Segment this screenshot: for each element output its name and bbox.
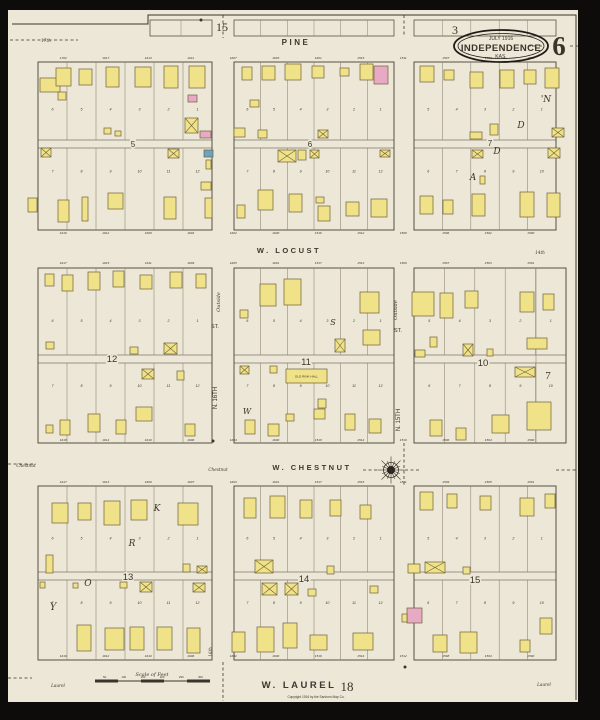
building-frame — [46, 342, 54, 349]
corner-street-note: 16th — [208, 647, 213, 657]
address-number: 1500 — [527, 231, 534, 235]
building-frame — [206, 160, 211, 169]
building-frame — [270, 496, 285, 518]
building-frame — [540, 618, 552, 634]
lot-number: 4 — [300, 319, 302, 323]
building-frame — [258, 130, 267, 138]
lot-number: 5 — [273, 107, 275, 111]
lot-number: 1 — [550, 319, 552, 323]
building-frame — [240, 310, 248, 318]
building-frame — [106, 67, 119, 87]
building-frame — [330, 500, 341, 516]
block-number: 13 — [123, 572, 134, 583]
address-number: 1503 — [485, 261, 492, 265]
building-frame — [88, 414, 100, 432]
lot-number: 3 — [139, 536, 141, 540]
address-number: 1514 — [357, 438, 364, 442]
building-frame — [58, 92, 66, 100]
street-label-chestnut: W. CHESTNUT — [272, 463, 351, 472]
building-stone — [204, 150, 213, 157]
address-number: 1617 — [60, 261, 67, 265]
lot-number: 1 — [197, 107, 199, 111]
address-number: 1506 — [442, 438, 449, 442]
lot-number: 11 — [352, 170, 356, 174]
address-number: 1615 — [102, 261, 109, 265]
building-frame — [52, 503, 68, 523]
building-brick — [374, 66, 388, 84]
lot-number: 3 — [139, 107, 141, 111]
lot-number: 11 — [352, 384, 356, 388]
addition-name-letter: O — [84, 579, 92, 589]
lot-number: 3 — [484, 107, 486, 111]
lot-number: 4 — [110, 536, 112, 540]
street-label-16th-st: ST. — [211, 324, 219, 330]
building-frame — [327, 566, 334, 574]
lot-number: 9 — [300, 384, 302, 388]
lot-number: 9 — [300, 170, 302, 174]
building-frame — [520, 498, 534, 516]
lot-number: 10 — [325, 601, 329, 605]
scale-bar-segment — [141, 680, 164, 683]
lot-number: 4 — [300, 107, 302, 111]
building-frame — [82, 197, 88, 221]
building-frame — [270, 366, 277, 373]
building-frame — [430, 337, 437, 347]
building-frame — [28, 198, 37, 212]
lot-number: 4 — [300, 536, 302, 540]
lot-number: 5 — [427, 536, 429, 540]
lot-number: 2 — [352, 319, 355, 323]
lot-number: 6 — [246, 319, 248, 323]
building-frame — [164, 66, 178, 88]
address-number: 1616 — [60, 231, 67, 235]
lot-number: 1 — [541, 536, 543, 540]
building-frame — [135, 67, 151, 87]
address-number: 1508 — [442, 654, 449, 658]
building-frame — [371, 199, 387, 217]
addition-name-letter: W — [243, 407, 252, 416]
scale-bar-number: 250 — [179, 675, 184, 679]
lot-number: 5 — [81, 536, 83, 540]
lot-number: 1 — [380, 536, 382, 540]
lot-number: 8 — [81, 170, 83, 174]
address-number: 1517 — [315, 480, 322, 484]
address-number: 1504 — [485, 438, 492, 442]
lot-number: 2 — [511, 107, 514, 111]
building-frame — [415, 350, 425, 357]
address-number: 1609 — [187, 261, 194, 265]
address-number: 1501 — [527, 480, 534, 484]
lot-number: 1 — [197, 536, 199, 540]
building-frame — [237, 205, 245, 218]
lot-number: 6 — [52, 319, 54, 323]
survey-dot — [212, 440, 215, 443]
address-number: 1610 — [145, 654, 152, 658]
address-number: 1613 — [102, 480, 109, 484]
block-number: 7 — [545, 370, 551, 382]
address-number: 1516 — [315, 231, 322, 235]
address-number: 1605 — [230, 261, 237, 265]
lot-number: 8 — [484, 170, 486, 174]
building-frame — [308, 589, 316, 596]
address-number: 1504 — [485, 654, 492, 658]
lot-number: 5 — [428, 319, 430, 323]
address-number: 1611 — [145, 261, 152, 265]
building-frame — [470, 132, 482, 139]
scale-label: Scale of Feet — [136, 672, 170, 678]
lot-number: 10 — [138, 170, 142, 174]
block-number: 14 — [299, 574, 310, 585]
lot-number: 10 — [549, 384, 553, 388]
lot-number: 8 — [273, 384, 275, 388]
address-number: 1510 — [400, 438, 407, 442]
building-frame — [56, 68, 71, 86]
block-number: 10 — [478, 358, 489, 369]
building-frame — [245, 420, 255, 434]
address-number: 1515 — [357, 480, 364, 484]
building-frame — [187, 628, 200, 653]
address-number: 1602 — [230, 231, 237, 235]
street-label-locust: W. LOCUST — [257, 246, 321, 255]
building-frame — [104, 501, 120, 525]
building-frame — [480, 496, 491, 510]
building-frame — [420, 492, 433, 510]
building-frame — [360, 64, 373, 80]
building-frame — [232, 632, 245, 652]
building-frame — [402, 614, 407, 622]
addition-name-letter: D — [492, 147, 500, 157]
lot-number: 3 — [484, 536, 486, 540]
lot-number: 2 — [352, 107, 355, 111]
address-number: 1515 — [357, 56, 364, 60]
building-frame — [470, 72, 483, 88]
building-brick — [188, 95, 197, 102]
building-frame — [131, 500, 147, 520]
building-frame — [520, 192, 534, 217]
lot-number: 6 — [427, 170, 429, 174]
building-frame — [189, 66, 205, 88]
building-frame — [353, 633, 373, 650]
addition-name-letter: R — [128, 539, 136, 549]
building-frame — [284, 279, 301, 305]
building-frame — [472, 194, 485, 216]
lot-number: 5 — [273, 536, 275, 540]
block-number: 7 — [488, 139, 493, 148]
address-number: 1513 — [357, 261, 364, 265]
lot-number: 10 — [325, 170, 329, 174]
address-number: 1612 — [102, 231, 109, 235]
building-frame — [524, 70, 536, 84]
lot-number: 6 — [52, 536, 54, 540]
building-frame — [286, 414, 294, 421]
building-frame — [300, 500, 312, 518]
building-frame — [183, 564, 190, 572]
lot-number: 5 — [81, 319, 83, 323]
scale-bar-segment — [187, 680, 210, 683]
lot-number: 4 — [110, 319, 112, 323]
lot-number: 3 — [326, 319, 328, 323]
corner-street-note: 17th — [41, 38, 51, 43]
building-frame — [283, 623, 297, 648]
block-number: 12 — [107, 354, 118, 365]
address-number: 1612 — [102, 654, 109, 658]
lot-number: 4 — [456, 107, 458, 111]
block-number: 5 — [131, 140, 136, 149]
address-number: 1609 — [145, 480, 152, 484]
building-frame — [314, 409, 325, 419]
address-number: 1502 — [485, 231, 492, 235]
building-frame — [492, 415, 509, 433]
address-number: 1512 — [400, 654, 407, 658]
lot-number: 3 — [326, 536, 328, 540]
building-frame — [465, 291, 478, 308]
building-frame — [46, 555, 53, 573]
lot-number: 2 — [167, 107, 170, 111]
building-frame — [185, 424, 195, 436]
lot-number: 9 — [110, 384, 112, 388]
copyright-line: Copyright 1916 by the Sanborn Map Co. — [287, 695, 344, 699]
lot-number: 1 — [541, 107, 543, 111]
address-number: 1508 — [400, 231, 407, 235]
address-number: 1500 — [527, 654, 534, 658]
building-frame — [440, 293, 453, 318]
lot-number: 1 — [380, 319, 382, 323]
building-frame — [487, 349, 493, 356]
building-frame — [115, 131, 121, 136]
block-number-3-top: 3 — [452, 23, 458, 37]
street-label-n16th: N. 16TH — [213, 387, 219, 409]
compass-north-letter: N — [389, 468, 392, 473]
building-frame — [58, 200, 69, 222]
address-number: 1506 — [442, 231, 449, 235]
lot-number: 2 — [511, 536, 514, 540]
address-number: 1511 — [400, 56, 407, 60]
lot-number: 4 — [456, 536, 458, 540]
building-frame — [430, 420, 442, 436]
building-frame — [88, 272, 100, 290]
scale-bar-number: 50 — [103, 675, 107, 679]
lot-number: 10 — [540, 601, 544, 605]
building-frame — [113, 271, 124, 287]
lot-number: 8 — [484, 601, 486, 605]
address-number: 1610 — [145, 438, 152, 442]
outside-note-15th: Outside — [393, 300, 399, 320]
lot-number: 3 — [139, 319, 141, 323]
lot-number: 6 — [246, 536, 248, 540]
lot-number: 12 — [379, 384, 383, 388]
building-frame — [444, 70, 454, 80]
building-frame — [370, 586, 378, 593]
building-frame — [40, 582, 45, 588]
building-frame — [346, 202, 359, 216]
lot-number: 5 — [273, 319, 275, 323]
building-frame — [260, 284, 276, 306]
lot-number: 4 — [459, 319, 461, 323]
street-label-15th-st: ST. — [394, 328, 402, 334]
building-frame — [369, 419, 381, 433]
building-frame — [201, 182, 211, 190]
building-frame — [456, 428, 466, 440]
lot-number: 10 — [138, 601, 142, 605]
corner-street-note: 14th — [535, 250, 545, 255]
scale-bar-number: 100 — [121, 675, 126, 679]
address-number: 1505 — [485, 480, 492, 484]
map-viewport: 5654321789101112665432178910111275432167… — [0, 0, 600, 720]
lot-number: 2 — [167, 319, 170, 323]
title-city: INDEPENDENCE — [461, 43, 541, 54]
corner-street-note: Chestnut — [208, 467, 228, 472]
street-label-pine: PINE — [282, 38, 311, 47]
addition-name-letter: S — [330, 318, 336, 327]
corner-street-note: Laurel — [50, 683, 65, 688]
title-state: KAS. — [495, 54, 506, 60]
address-number: 1601 — [272, 261, 279, 265]
lot-number: 6 — [428, 384, 430, 388]
building-frame — [105, 628, 124, 650]
building-frame — [140, 275, 152, 289]
address-number: 1600 — [272, 231, 279, 235]
building-frame — [447, 494, 457, 508]
address-number: 1512 — [357, 231, 364, 235]
address-number: 1518 — [315, 438, 322, 442]
building-frame — [545, 494, 555, 508]
building-frame — [298, 150, 306, 160]
building-frame — [360, 292, 379, 313]
building-frame — [130, 627, 144, 650]
building-frame — [60, 420, 70, 435]
lot-number: 12 — [379, 170, 383, 174]
lot-number: 10 — [138, 384, 142, 388]
lot-number: 8 — [81, 601, 83, 605]
addition-name-letter: K — [153, 504, 162, 514]
building-frame — [363, 330, 380, 345]
address-number: 1608 — [145, 231, 152, 235]
building-frame — [460, 632, 477, 653]
building-frame — [46, 425, 53, 433]
address-number: 1603 — [230, 480, 237, 484]
building-frame — [443, 200, 453, 214]
building-frame — [257, 627, 274, 652]
building-frame — [116, 420, 126, 434]
address-number: 1517 — [315, 261, 322, 265]
lot-number: 9 — [300, 601, 302, 605]
lot-number: 6 — [52, 107, 54, 111]
lot-number: 9 — [519, 384, 521, 388]
lot-number: 8 — [273, 601, 275, 605]
lot-number: 5 — [427, 107, 429, 111]
building-frame — [520, 640, 530, 652]
building-frame — [108, 193, 123, 209]
building-frame — [289, 194, 302, 212]
outside-note-16th: Outside — [216, 292, 222, 312]
lot-number: 1 — [380, 107, 382, 111]
building-frame — [547, 193, 560, 217]
address-number: 1702 — [60, 56, 67, 60]
address-number: 1614 — [102, 438, 109, 442]
building-frame — [285, 64, 301, 80]
address-number: 1500 — [527, 438, 534, 442]
scale-bar-number: 300 — [198, 675, 203, 679]
building-frame — [340, 68, 349, 76]
address-number: 1602 — [230, 654, 237, 658]
building-frame — [79, 69, 92, 85]
building-brick — [407, 608, 422, 623]
address-number: 1607 — [187, 480, 194, 484]
building-frame — [543, 294, 554, 310]
building-frame — [164, 197, 176, 219]
building-frame — [316, 197, 324, 203]
lot-number: 12 — [379, 601, 383, 605]
building-frame — [312, 66, 324, 78]
lot-number: 3 — [489, 319, 491, 323]
lot-number: 9 — [110, 170, 112, 174]
building-frame — [258, 190, 273, 210]
address-number: 1618 — [60, 438, 67, 442]
block-number-18: 18 — [341, 679, 354, 694]
lot-number: 3 — [326, 107, 328, 111]
title-date: JULY 1916 — [489, 36, 513, 42]
lot-number: 11 — [352, 601, 356, 605]
building-frame — [318, 206, 330, 221]
lot-number: 6 — [427, 601, 429, 605]
building-frame — [262, 66, 275, 80]
address-number: 1601 — [315, 56, 322, 60]
lot-number: 9 — [512, 601, 514, 605]
building-frame — [345, 414, 355, 430]
address-number: 1606 — [187, 654, 194, 658]
lot-number: 12 — [196, 601, 200, 605]
address-number: 1509 — [400, 261, 407, 265]
lot-number: 2 — [518, 319, 521, 323]
building-frame — [360, 505, 371, 519]
lot-number: 4 — [110, 107, 112, 111]
building-frame — [242, 67, 252, 80]
building-frame — [527, 402, 551, 430]
addition-name-letter: 'N — [541, 95, 552, 105]
corner-street-note: Chestnut — [16, 463, 36, 468]
building-frame — [78, 503, 91, 520]
address-number: 1613 — [145, 56, 152, 60]
corner-street-note: Laurel — [536, 682, 551, 687]
lot-number: 6 — [246, 107, 248, 111]
block-number-15-top: 15 — [216, 20, 228, 34]
building-frame — [130, 347, 138, 354]
building-frame — [527, 338, 547, 349]
sheet-number: 6 — [552, 31, 566, 61]
building-frame — [244, 498, 256, 518]
address-number: 1507 — [442, 261, 449, 265]
lot-number: 12 — [196, 384, 200, 388]
addition-name-letter: A — [469, 173, 477, 183]
address-number: 1601 — [272, 480, 279, 484]
building-frame — [250, 100, 259, 107]
lot-number: 10 — [540, 170, 544, 174]
building-frame — [234, 128, 245, 137]
address-number: 1617 — [60, 480, 67, 484]
address-number: 1600 — [272, 438, 279, 442]
addition-name-letter: D — [516, 121, 524, 131]
lot-number: 11 — [167, 601, 171, 605]
lot-number: 9 — [512, 170, 514, 174]
building-frame — [136, 407, 152, 421]
lot-number: 5 — [81, 107, 83, 111]
building-frame — [205, 198, 212, 218]
survey-dot — [200, 19, 203, 22]
address-number: 1604 — [187, 231, 194, 235]
survey-dot — [404, 666, 407, 669]
address-number: 1509 — [442, 480, 449, 484]
building-frame — [490, 124, 498, 135]
